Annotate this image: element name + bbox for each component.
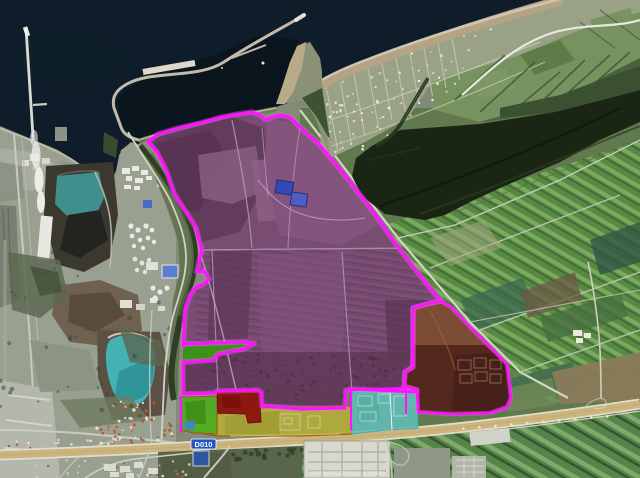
- svg-text:KAYNAKGOVGLE A1RB15: KAYNAKGOVGLE A1RB15: [310, 471, 386, 477]
- svg-text:D010: D010: [195, 440, 213, 449]
